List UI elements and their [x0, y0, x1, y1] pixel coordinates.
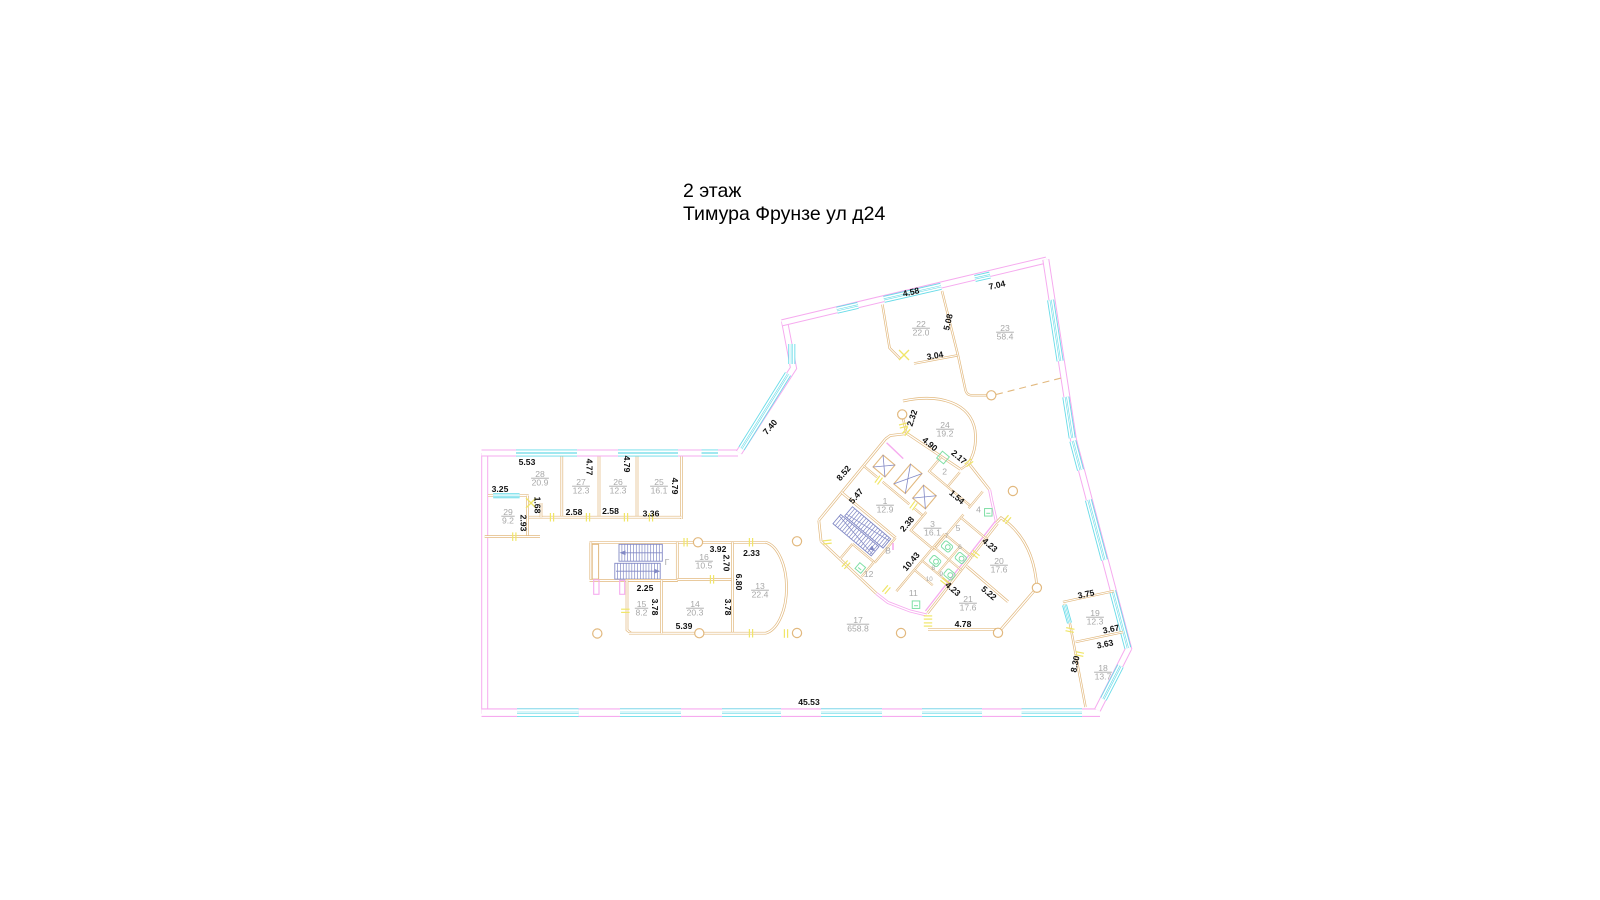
- svg-text:20.9: 20.9: [532, 478, 549, 488]
- svg-text:12.3: 12.3: [573, 486, 590, 496]
- svg-text:4.79: 4.79: [670, 478, 680, 495]
- svg-text:2.70: 2.70: [722, 555, 732, 572]
- svg-text:20.3: 20.3: [687, 608, 704, 618]
- svg-text:3.78: 3.78: [723, 599, 733, 616]
- svg-text:9: 9: [939, 571, 943, 578]
- svg-text:12.3: 12.3: [1087, 617, 1104, 627]
- svg-text:17.6: 17.6: [960, 603, 977, 613]
- svg-text:19.2: 19.2: [937, 429, 954, 439]
- svg-text:2.58: 2.58: [566, 507, 583, 517]
- svg-text:3.78: 3.78: [650, 599, 660, 616]
- svg-text:658.8: 658.8: [847, 624, 869, 634]
- svg-text:Тимура Фрунзе ул д24: Тимура Фрунзе ул д24: [683, 203, 886, 225]
- svg-text:6: 6: [958, 544, 962, 551]
- svg-text:В: В: [885, 546, 891, 556]
- svg-text:8.2: 8.2: [636, 608, 648, 618]
- svg-text:45.53: 45.53: [798, 697, 820, 707]
- svg-text:3.25: 3.25: [492, 484, 509, 494]
- svg-text:5.39: 5.39: [676, 621, 693, 631]
- svg-text:16.1: 16.1: [924, 528, 941, 538]
- svg-text:5.53: 5.53: [519, 457, 536, 467]
- svg-text:2: 2: [942, 467, 947, 477]
- svg-text:58.4: 58.4: [997, 332, 1014, 342]
- svg-text:22.4: 22.4: [752, 590, 769, 600]
- svg-text:4: 4: [976, 505, 981, 515]
- svg-text:2.93: 2.93: [519, 515, 529, 532]
- svg-text:6.80: 6.80: [734, 574, 744, 591]
- svg-text:4.78: 4.78: [955, 619, 972, 629]
- svg-text:10.5: 10.5: [696, 561, 713, 571]
- svg-text:9.2: 9.2: [502, 516, 514, 526]
- svg-text:13.7: 13.7: [1095, 672, 1112, 682]
- svg-text:1.68: 1.68: [533, 497, 543, 514]
- svg-text:16.1: 16.1: [651, 486, 668, 496]
- svg-text:2.33: 2.33: [743, 548, 760, 558]
- svg-text:22.0: 22.0: [913, 328, 930, 338]
- svg-text:10: 10: [926, 576, 933, 583]
- svg-text:17.6: 17.6: [991, 565, 1008, 575]
- svg-text:Г: Г: [665, 557, 670, 567]
- svg-text:12: 12: [864, 569, 874, 579]
- svg-text:3.92: 3.92: [710, 544, 727, 554]
- svg-text:8: 8: [931, 565, 935, 572]
- svg-text:12.9: 12.9: [877, 505, 894, 515]
- svg-text:2.58: 2.58: [602, 506, 619, 516]
- svg-text:4.79: 4.79: [622, 456, 632, 473]
- svg-text:2 этаж: 2 этаж: [683, 180, 741, 202]
- svg-text:11: 11: [909, 588, 918, 598]
- svg-text:2.25: 2.25: [637, 583, 654, 593]
- svg-text:7: 7: [945, 533, 949, 540]
- svg-text:3.36: 3.36: [643, 509, 660, 519]
- svg-text:12.3: 12.3: [610, 486, 627, 496]
- svg-text:5: 5: [956, 523, 961, 533]
- svg-text:4.77: 4.77: [585, 459, 595, 476]
